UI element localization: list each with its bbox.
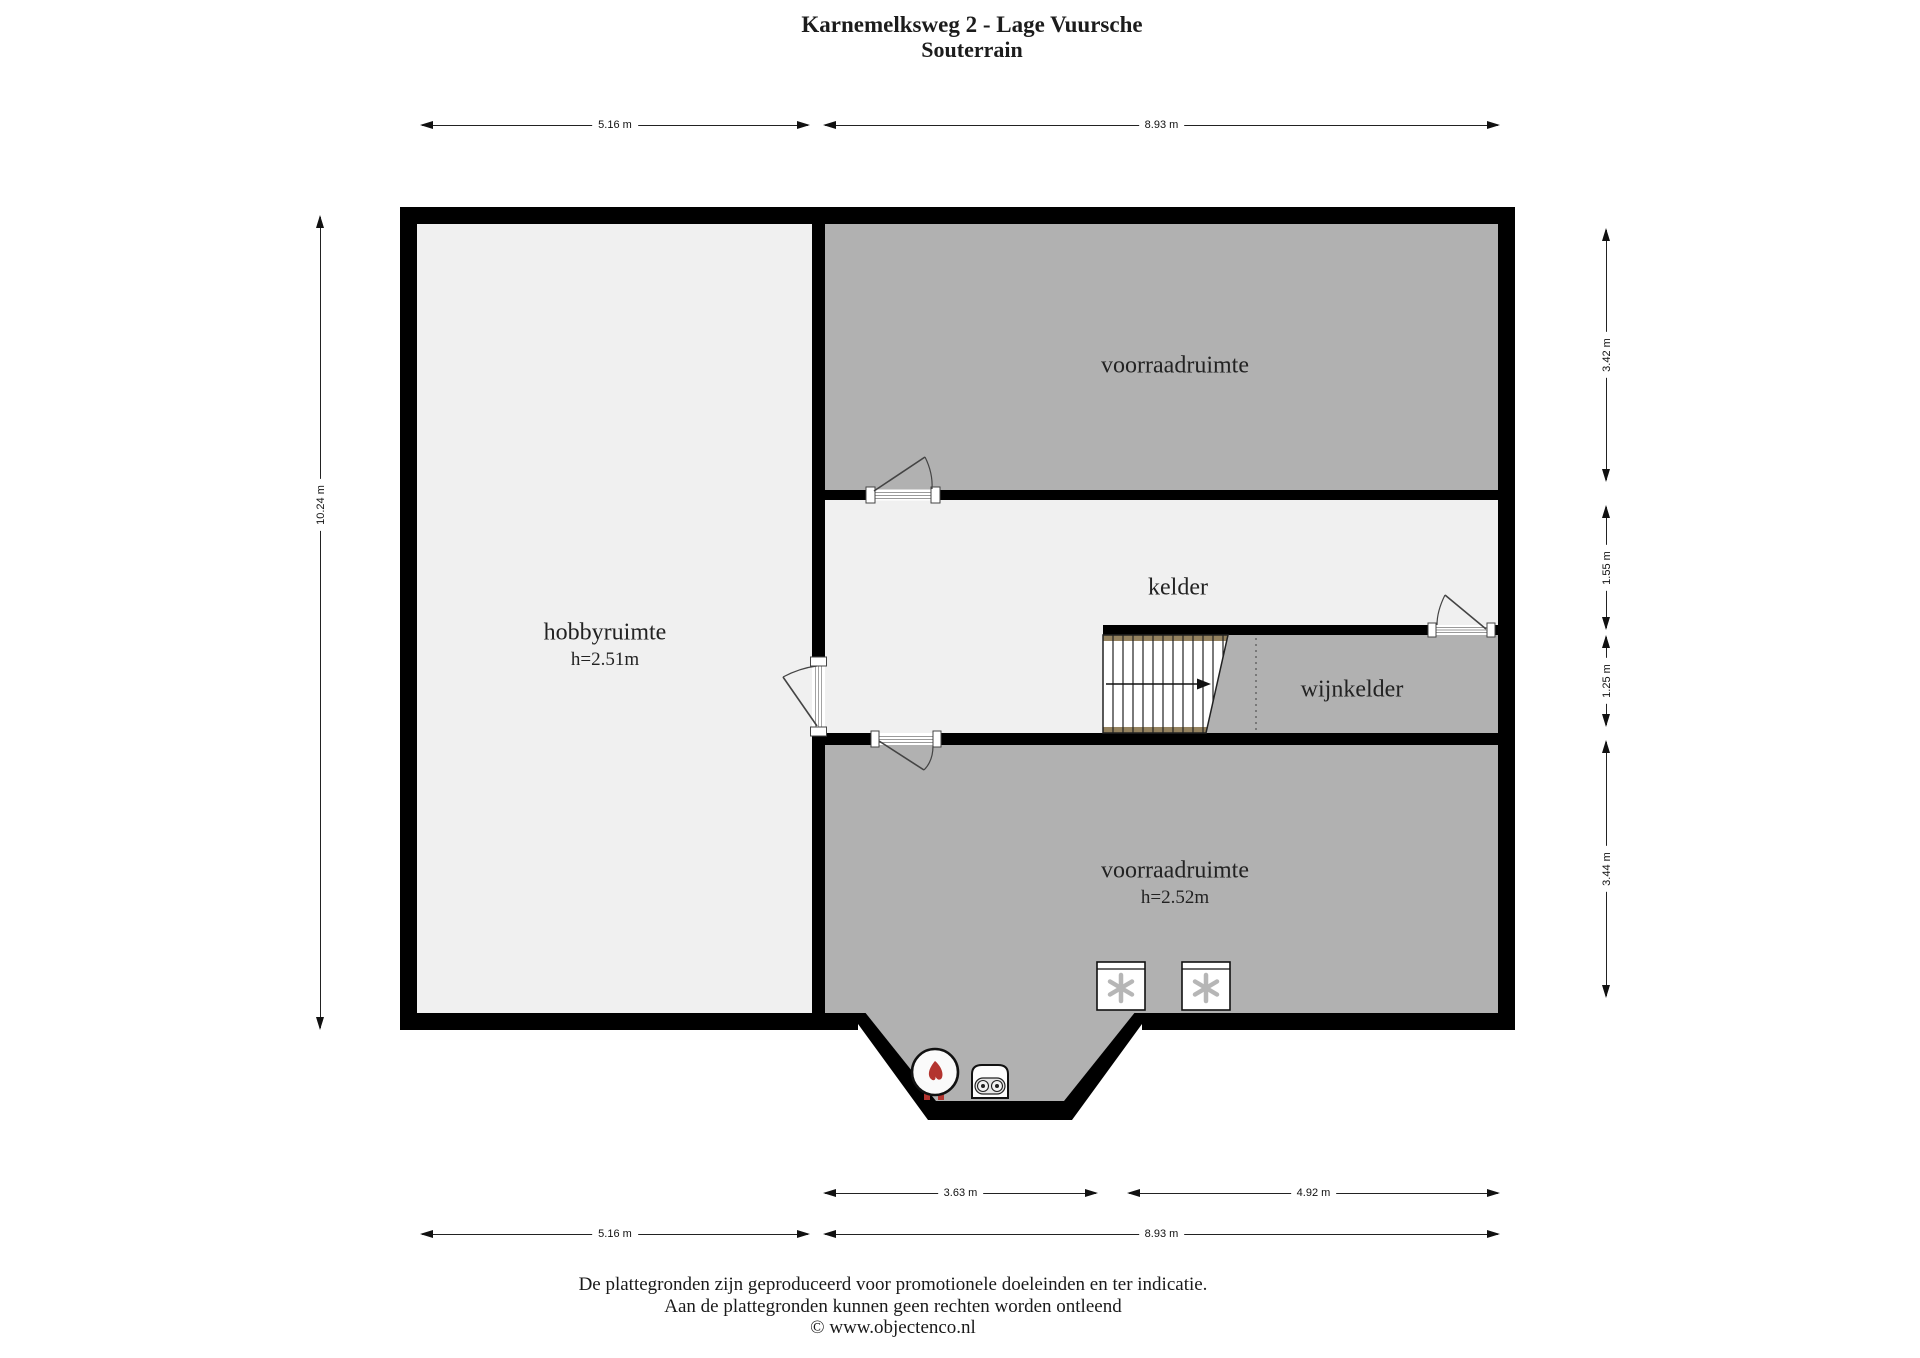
footer-line-3: © www.objectenco.nl xyxy=(0,1317,1786,1339)
room-label-voorraadruimte-top: voorraadruimte xyxy=(1101,353,1249,380)
title-block: Karnemelksweg 2 - Lage Vuursche Souterra… xyxy=(0,12,1920,62)
room-label-voorraadruimte-bottom: voorraadruimte xyxy=(1101,858,1249,885)
page-subtitle: Souterrain xyxy=(0,38,1920,62)
dimension-label: 1.55 m xyxy=(1601,545,1613,591)
wall-interior-vertical-upper xyxy=(812,224,825,657)
wall-right xyxy=(1498,207,1515,1030)
room-label-kelder: kelder xyxy=(1148,575,1208,602)
room-label-hobbyruimte: hobbyruimte xyxy=(544,620,667,647)
flame-icon xyxy=(929,1061,943,1080)
dimension-label: 3.63 m xyxy=(938,1187,984,1199)
dimension-label: 8.93 m xyxy=(1139,1228,1185,1240)
bay-floor xyxy=(864,1011,1136,1101)
dimension-label: 8.93 m xyxy=(1139,119,1185,131)
room-height-hobbyruimte: h=2.51m xyxy=(571,649,639,671)
bay-outer-wall xyxy=(850,1013,1150,1120)
dimension-label: 3.44 m xyxy=(1601,846,1613,892)
room-label-wijnkelder: wijnkelder xyxy=(1301,677,1404,704)
wall-above-stairs-stub xyxy=(1495,625,1498,635)
dimension-bottom-upper-right: 4.92 m xyxy=(1127,1187,1500,1200)
wall-kelder-north-left xyxy=(825,490,867,500)
room-kelder xyxy=(825,500,1498,625)
footer-line-1: De plattegronden zijn geproduceerd voor … xyxy=(0,1274,1786,1296)
wall-kelder-north-right xyxy=(940,490,1498,500)
pump-icon xyxy=(972,1065,1008,1098)
room-hobbyruimte xyxy=(417,224,812,1013)
wall-bottom-right xyxy=(1142,1013,1515,1030)
footer: De plattegronden zijn geproduceerd voor … xyxy=(0,1274,1786,1339)
dimension-left: 10.24 m xyxy=(314,215,327,1030)
dimension-right-1: 3.42 m xyxy=(1600,228,1613,482)
room-height-voorraadruimte-bottom: h=2.52m xyxy=(1141,887,1209,909)
wall-top xyxy=(400,207,1515,224)
dimension-top-left: 5.16 m xyxy=(420,119,810,132)
dimension-bottom-upper-left: 3.63 m xyxy=(823,1187,1098,1200)
wall-above-stairs xyxy=(1103,625,1428,635)
dimension-top-right: 8.93 m xyxy=(823,119,1500,132)
dimension-label: 4.92 m xyxy=(1291,1187,1337,1199)
room-kelder-extension xyxy=(825,625,1103,733)
dimension-label: 5.16 m xyxy=(592,119,638,131)
dimension-label: 10.24 m xyxy=(315,479,327,531)
floorplan-page: Karnemelksweg 2 - Lage Vuursche Souterra… xyxy=(0,0,1920,1358)
wall-kelder-south-left xyxy=(825,733,871,745)
wall-interior-vertical-lower xyxy=(812,736,825,1013)
dimension-right-4: 3.44 m xyxy=(1600,740,1613,998)
page-title: Karnemelksweg 2 - Lage Vuursche xyxy=(0,12,1920,38)
wall-bottom-left xyxy=(400,1013,858,1030)
dimension-label: 3.42 m xyxy=(1601,332,1613,378)
dimension-bottom-lower-right: 8.93 m xyxy=(823,1228,1500,1241)
wall-left xyxy=(400,207,417,1030)
wall-kelder-south-right xyxy=(941,733,1498,745)
dimension-label: 1.25 m xyxy=(1601,658,1613,704)
dimension-right-2: 1.55 m xyxy=(1600,505,1613,630)
dimension-bottom-lower-left: 5.16 m xyxy=(420,1228,810,1241)
boiler-icon xyxy=(912,1049,958,1100)
footer-line-2: Aan de plattegronden kunnen geen rechten… xyxy=(0,1296,1786,1318)
dimension-right-3: 1.25 m xyxy=(1600,635,1613,727)
dimension-label: 5.16 m xyxy=(592,1228,638,1240)
